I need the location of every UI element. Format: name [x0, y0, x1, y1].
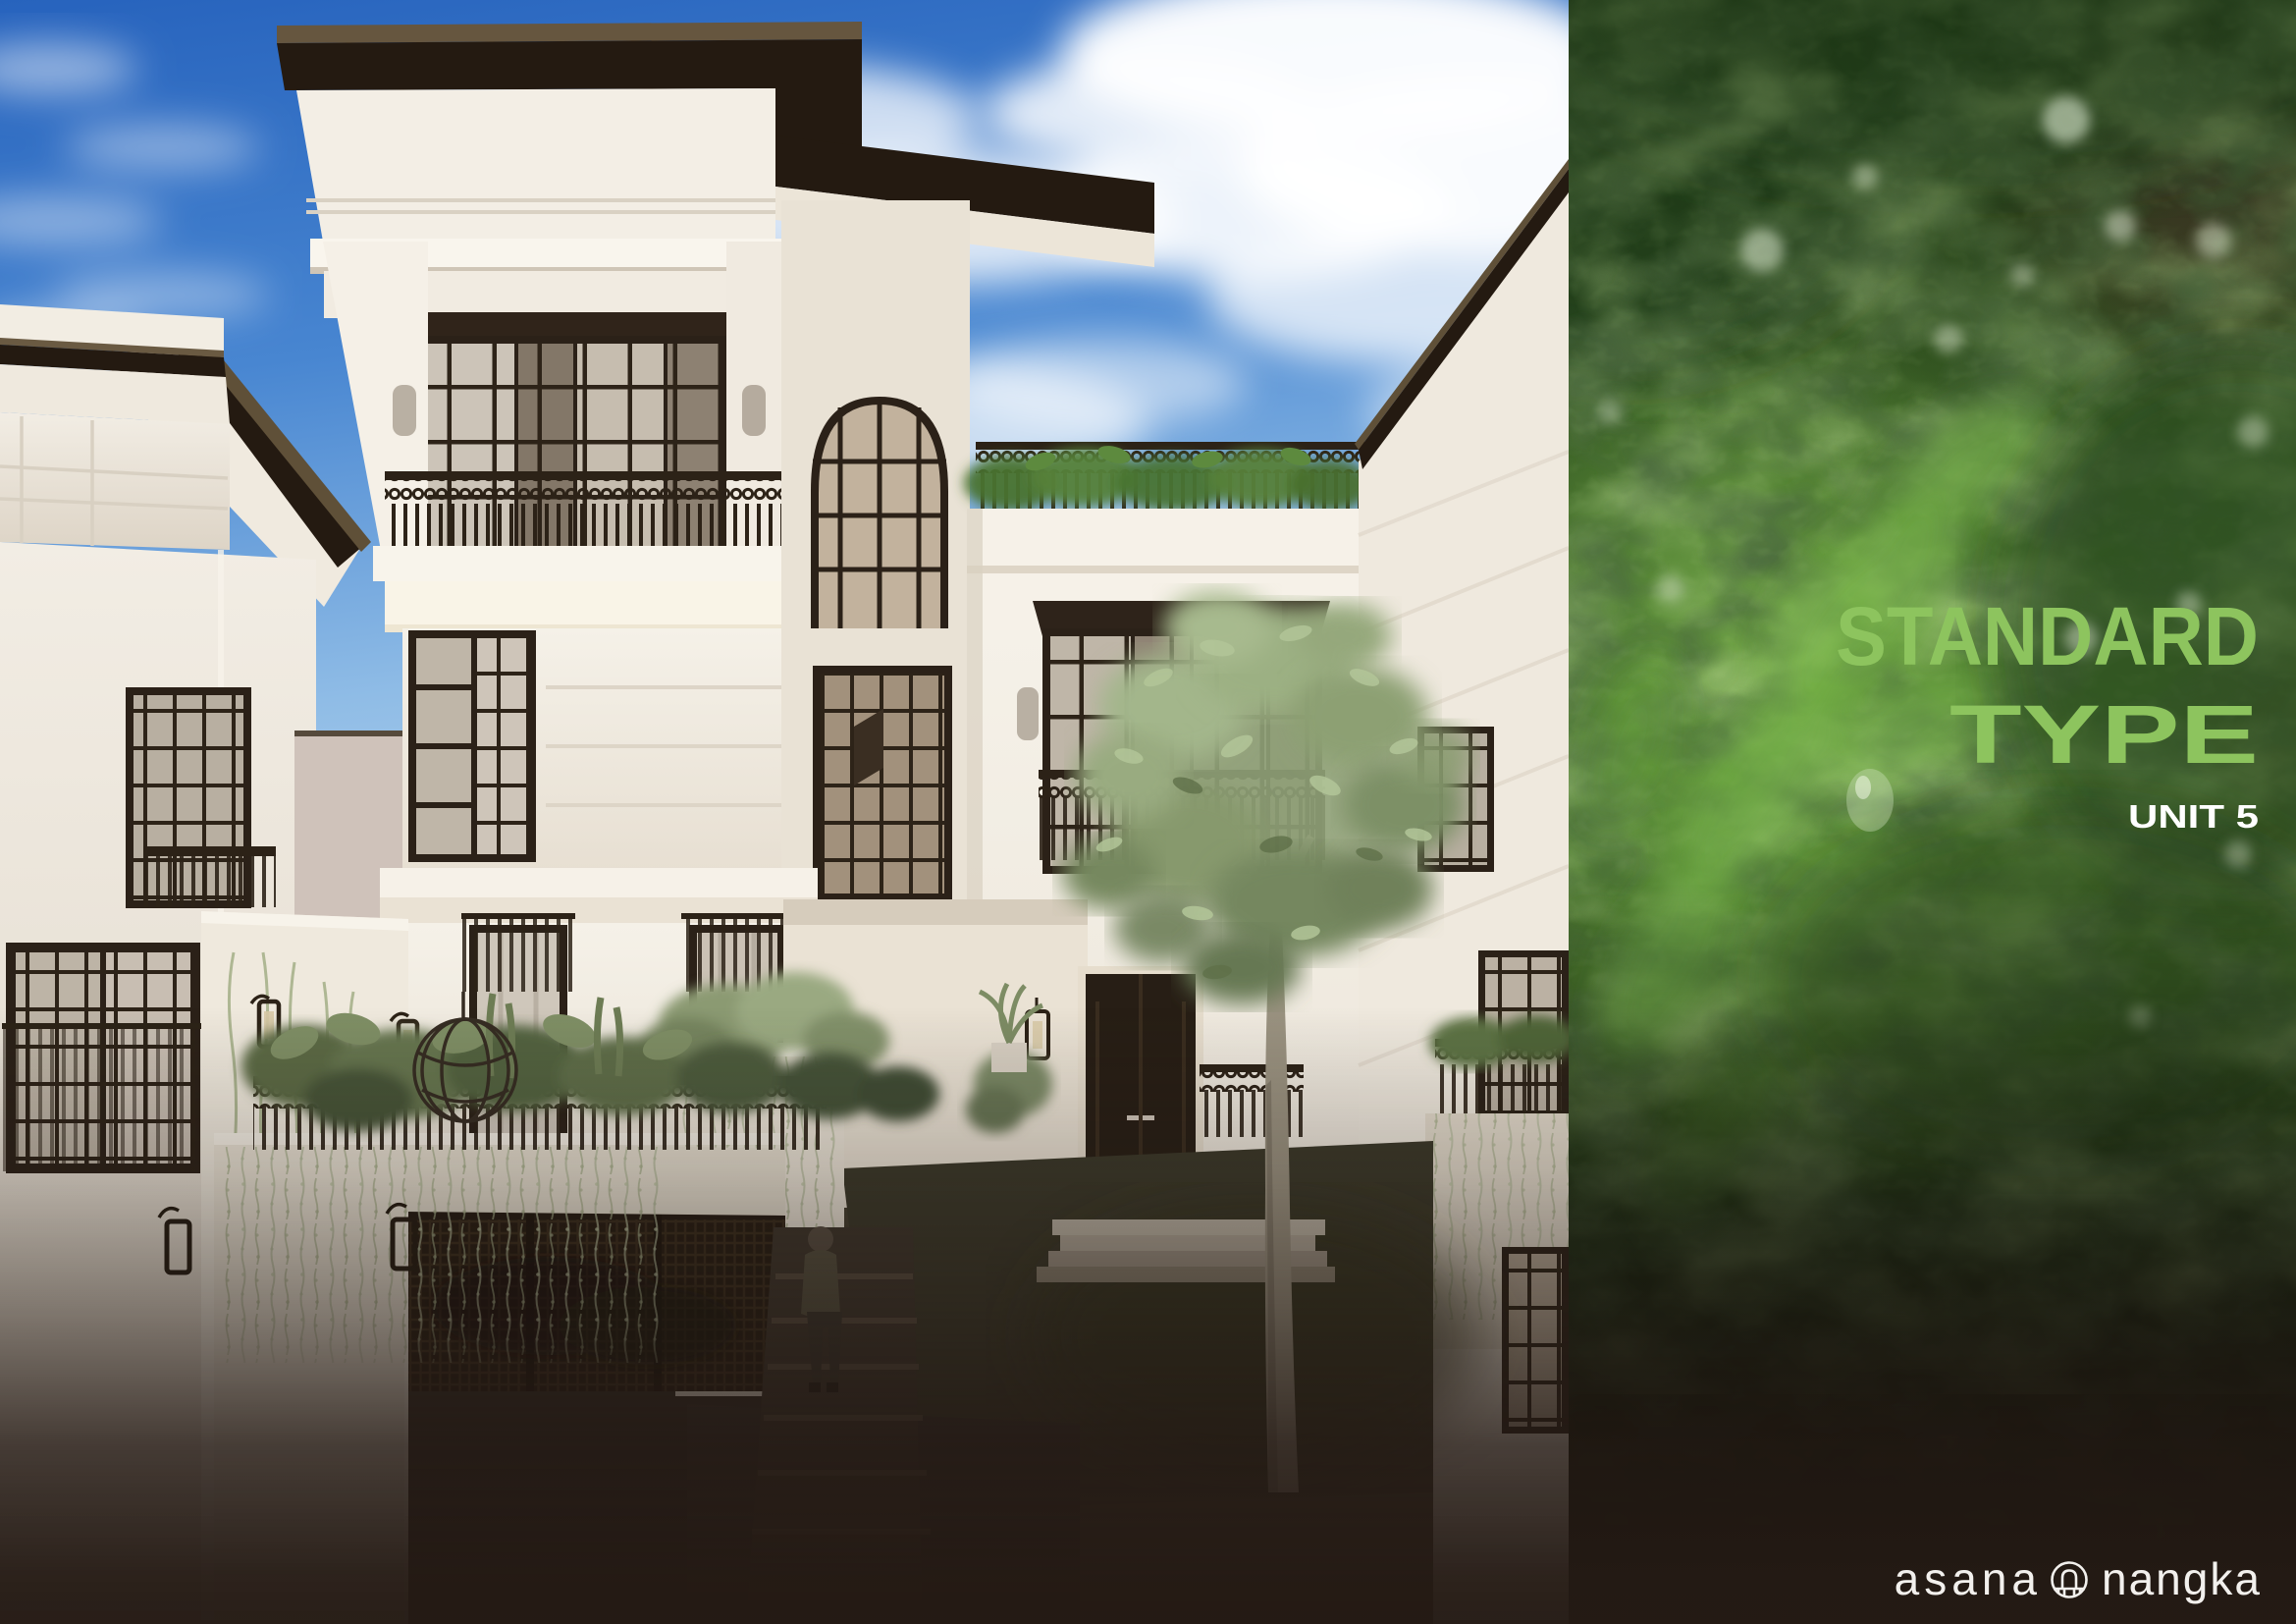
svg-text:TYPE: TYPE [1949, 688, 2259, 781]
svg-text:asana: asana [1895, 1553, 2042, 1604]
svg-text:UNIT 5: UNIT 5 [2128, 798, 2259, 835]
svg-text:STANDARD: STANDARD [1836, 590, 2259, 682]
svg-text:nangka: nangka [2102, 1553, 2262, 1604]
